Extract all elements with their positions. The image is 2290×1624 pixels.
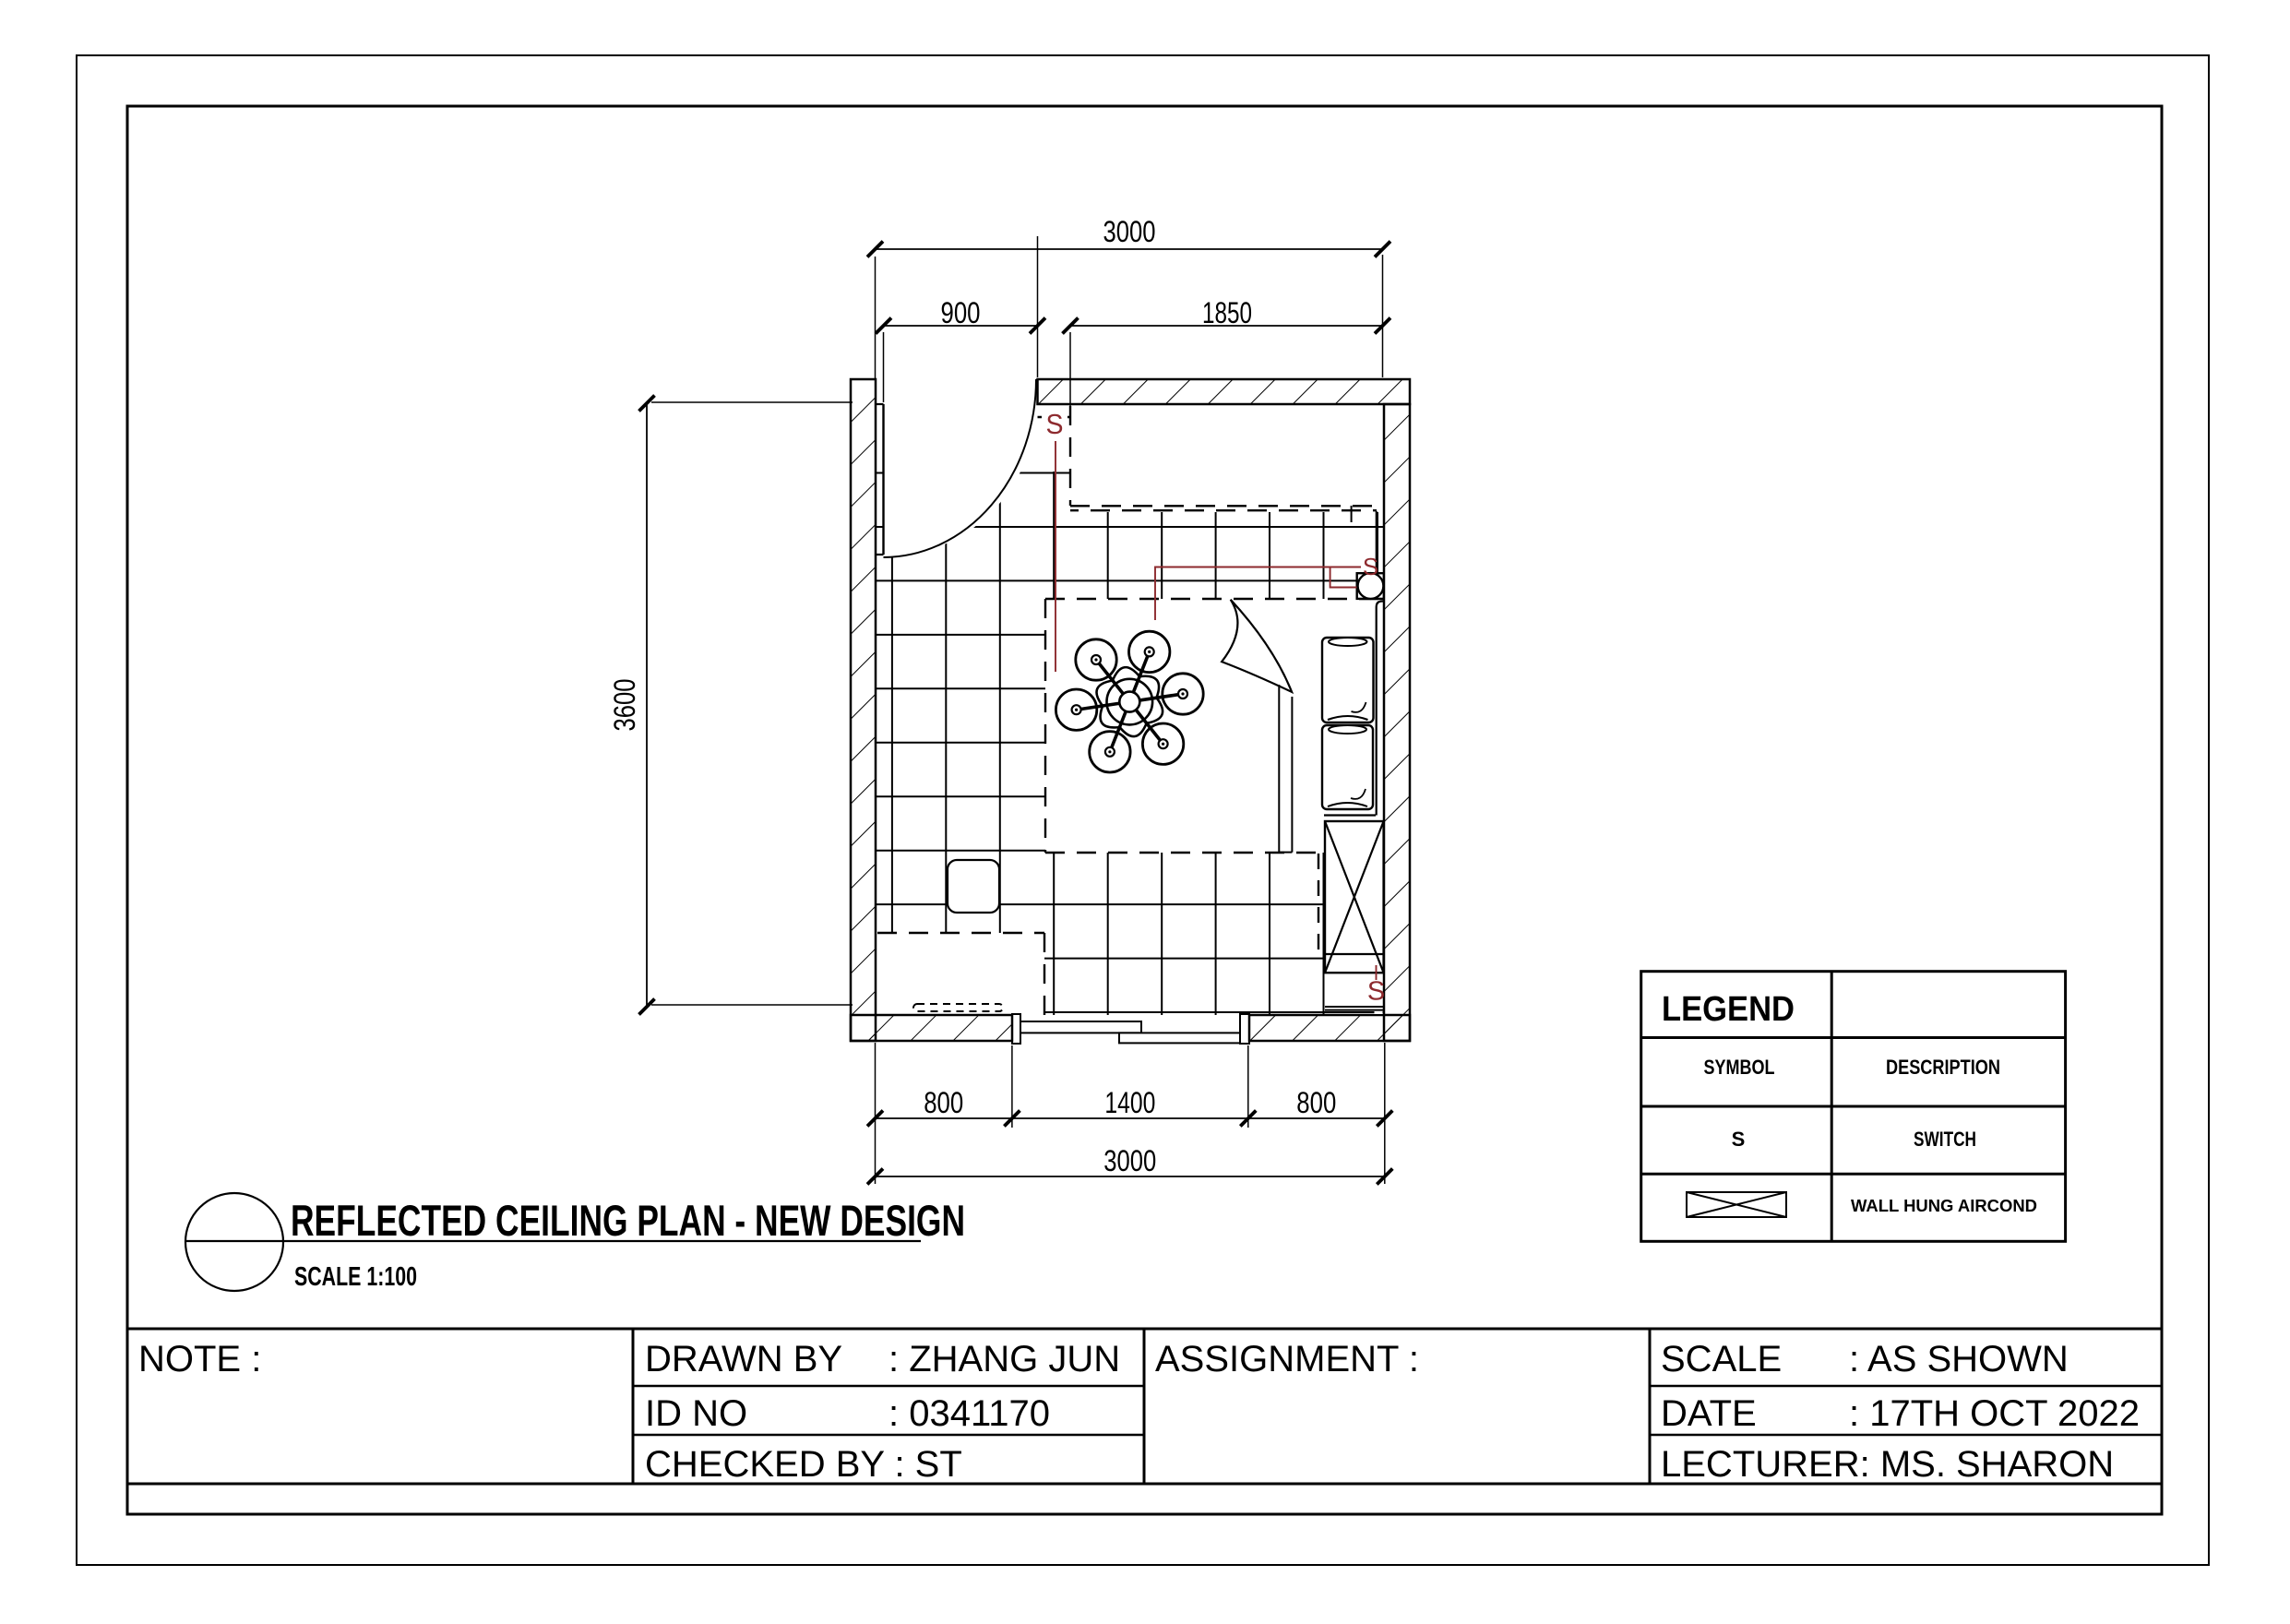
svg-text:: 17TH OCT 2022: : 17TH OCT 2022 [1849, 1393, 2140, 1434]
svg-text:3000: 3000 [1103, 215, 1156, 248]
svg-text:SYMBOL: SYMBOL [1704, 1056, 1775, 1079]
svg-text:: AS SHOWN: : AS SHOWN [1849, 1339, 2069, 1379]
svg-text:DRAWN BY: DRAWN BY [645, 1339, 842, 1379]
svg-text:DESCRIPTION: DESCRIPTION [1886, 1056, 2000, 1079]
svg-text:3600: 3600 [608, 679, 641, 732]
svg-text:S: S [1732, 1128, 1746, 1151]
svg-text:: ZHANG JUN: : ZHANG JUN [889, 1339, 1120, 1379]
svg-text:CHECKED BY : ST: CHECKED BY : ST [645, 1444, 962, 1485]
svg-text:LECTURER: MS. SHARON: LECTURER: MS. SHARON [1661, 1444, 2114, 1485]
svg-text:DATE: DATE [1661, 1393, 1757, 1434]
svg-text:SCALE 1:100: SCALE 1:100 [294, 1262, 417, 1292]
svg-text:S: S [1367, 977, 1385, 1007]
svg-text:: 0341170: : 0341170 [889, 1393, 1050, 1434]
svg-text:SCALE: SCALE [1661, 1339, 1782, 1379]
svg-text:ASSIGNMENT :: ASSIGNMENT : [1155, 1339, 1419, 1379]
svg-text:S: S [1363, 553, 1378, 580]
svg-text:1850: 1850 [1202, 296, 1252, 329]
svg-text:800: 800 [1296, 1086, 1336, 1119]
svg-text:WALL HUNG AIRCOND: WALL HUNG AIRCOND [1851, 1197, 2037, 1215]
svg-text:SWITCH: SWITCH [1914, 1128, 1976, 1151]
svg-text:ID NO: ID NO [645, 1393, 747, 1434]
svg-text:LEGEND: LEGEND [1662, 990, 1795, 1029]
svg-text:NOTE :: NOTE : [138, 1339, 261, 1379]
svg-text:1400: 1400 [1104, 1086, 1155, 1119]
svg-text:REFLECTED CEILING PLAN - NEW D: REFLECTED CEILING PLAN - NEW DESIGN [291, 1196, 965, 1245]
svg-text:S: S [1046, 408, 1064, 440]
svg-text:3000: 3000 [1103, 1144, 1156, 1177]
svg-text:900: 900 [941, 296, 981, 329]
svg-text:800: 800 [924, 1086, 963, 1119]
